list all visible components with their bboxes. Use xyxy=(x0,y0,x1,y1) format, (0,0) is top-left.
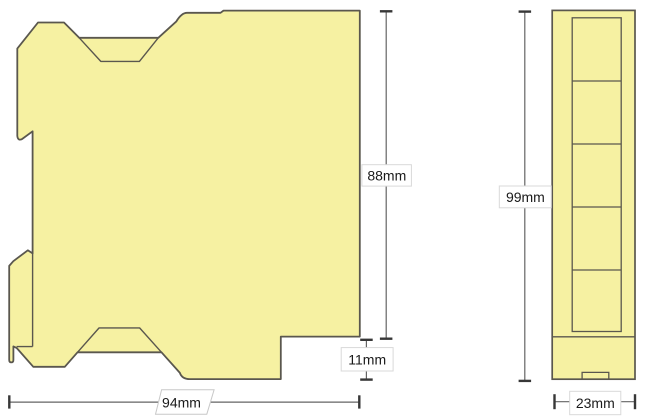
svg-text:88mm: 88mm xyxy=(367,167,406,183)
svg-text:23mm: 23mm xyxy=(576,395,615,411)
svg-text:99mm: 99mm xyxy=(506,189,545,205)
svg-text:94mm: 94mm xyxy=(162,395,201,411)
svg-text:11mm: 11mm xyxy=(348,351,386,367)
